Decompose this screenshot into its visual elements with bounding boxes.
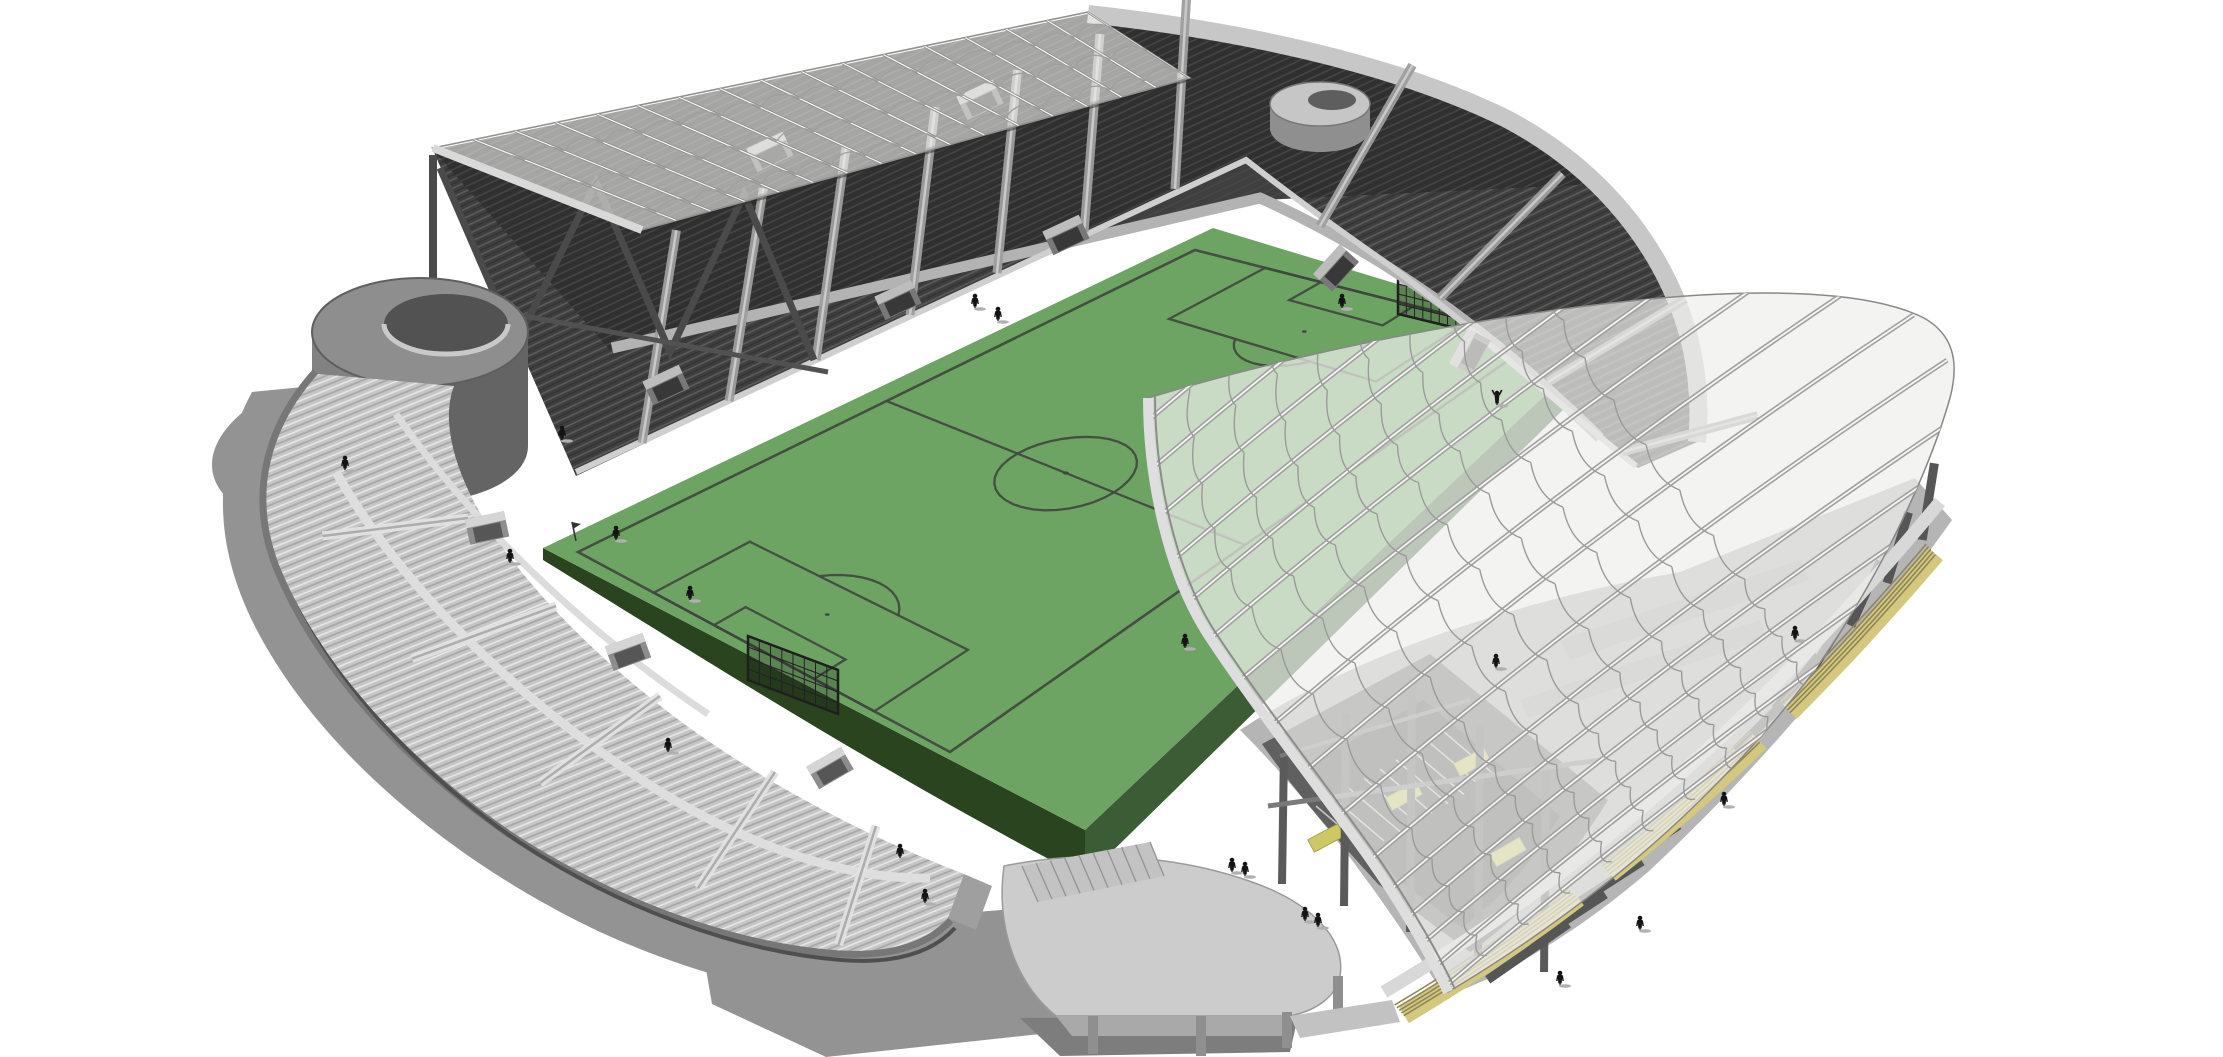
goal-far <box>1398 274 1464 330</box>
east-fins <box>1488 463 1935 980</box>
nw-rib-hi <box>965 38 1087 107</box>
vomitory-top <box>874 280 914 305</box>
canopy-rafter <box>1240 225 1848 681</box>
canopy-scallops <box>1312 296 1612 862</box>
person-arm <box>1562 976 1563 982</box>
drum-body <box>312 334 528 502</box>
aisle-stairs-edge <box>412 606 556 659</box>
canopy-rafter-hi <box>1153 12 1761 468</box>
person-arm <box>1187 639 1188 645</box>
plinth-stripe <box>1397 518 1953 1008</box>
person-shadow <box>1639 929 1651 933</box>
facade-fin <box>1530 894 1605 943</box>
person-body <box>560 430 565 440</box>
facade-fin <box>1775 656 1818 709</box>
person-arm <box>1000 312 1001 318</box>
person-arm <box>1721 797 1722 803</box>
person-shadow <box>1794 639 1806 643</box>
person-arm <box>687 591 688 597</box>
person-head <box>1495 391 1500 396</box>
ramp-step <box>1093 853 1108 888</box>
aisle-stairs <box>839 826 877 945</box>
person-shadow <box>997 320 1009 324</box>
canopy-rafter <box>1149 0 1757 420</box>
person-arm <box>618 531 619 537</box>
person-shadow <box>1231 871 1243 875</box>
canopy-scallops <box>1270 327 1570 893</box>
aisle-stairs-edge <box>997 70 1018 273</box>
curve-stand-terraces <box>266 374 964 951</box>
canopy-rafter-hi <box>1391 434 1999 890</box>
canopy-scallops <box>1478 171 1778 737</box>
main-stand-vomitories <box>642 80 1490 405</box>
nw-rib <box>597 114 779 192</box>
canopy-rafter <box>1272 269 1880 725</box>
person-arm <box>342 461 343 467</box>
person-figure <box>972 294 986 311</box>
person-shadow <box>1304 920 1316 924</box>
east-columns <box>1282 678 1546 972</box>
curve-stand-wall-base <box>273 384 955 961</box>
plinth-stripe <box>1399 520 1955 1010</box>
plinth-stripe <box>1401 523 1957 1013</box>
nw-rib-hi <box>720 89 882 164</box>
ground-shadows <box>212 384 1298 1057</box>
ramp-step <box>1136 845 1150 879</box>
vomitory-top <box>1449 328 1476 368</box>
yellow-stair-flight <box>1454 748 1491 776</box>
vomitory-top <box>806 747 845 775</box>
plinth-band <box>1404 525 1960 1015</box>
vomitory <box>1042 215 1089 255</box>
east-column <box>1282 750 1284 884</box>
nw-scallops <box>485 24 1113 168</box>
pitch-side-se <box>1085 345 1612 878</box>
main-stand-upper-rows <box>433 14 1600 350</box>
nw-rib <box>965 38 1087 107</box>
main-stand-front-rail <box>576 160 1636 472</box>
person-arm <box>1499 390 1502 395</box>
canopy-rafter <box>1423 487 2031 943</box>
goal-near-frame <box>748 636 838 714</box>
canopy-rafter-hi <box>1149 0 1757 420</box>
person-head <box>1638 916 1643 921</box>
person-head <box>666 738 671 743</box>
person-shadow <box>1244 875 1256 879</box>
vomitory-body <box>746 132 793 172</box>
pitch-side-sw <box>543 548 1085 878</box>
person-figure <box>1339 294 1353 311</box>
aisle-stairs <box>816 147 846 360</box>
aisle-stairs <box>1175 0 1187 189</box>
person-figure <box>1182 634 1196 651</box>
person-figure <box>1492 390 1508 408</box>
penalty-area-far <box>1169 268 1470 382</box>
person-figure <box>665 738 679 755</box>
vomitory-opening <box>1324 256 1354 287</box>
person-head <box>614 526 619 531</box>
goal-near-net <box>748 669 838 703</box>
person-shadow <box>974 307 986 311</box>
canopy-rafter-hi <box>1211 183 1819 639</box>
person-shadow <box>899 857 911 861</box>
person-figure <box>897 844 911 861</box>
drum-top <box>312 278 528 386</box>
yellow-stair-flight <box>1490 837 1526 866</box>
vomitory <box>1449 328 1491 376</box>
nw-rib <box>433 148 642 230</box>
pitch-platform <box>543 228 1612 878</box>
person-arm <box>927 894 928 900</box>
vomitory-body <box>874 280 921 320</box>
person-arm <box>1182 639 1183 645</box>
stadium-svg <box>0 0 2223 1057</box>
goal-far-net <box>1398 284 1464 300</box>
east-canopy-gutter-line <box>1155 395 1455 989</box>
person-arm <box>1797 631 1798 637</box>
nw-rib <box>1006 29 1121 97</box>
curve-stand-walkway <box>336 472 930 878</box>
canopy-rafter-hi <box>1435 510 2043 966</box>
nw-rib-hi <box>761 80 917 154</box>
nw-rib-hi <box>1006 29 1121 97</box>
mouth-stair <box>1428 741 1480 785</box>
person-shadow <box>667 751 679 755</box>
person-body <box>1303 911 1308 921</box>
facade-fin <box>1655 786 1715 830</box>
person-shadow <box>1723 805 1735 809</box>
goal-area-far <box>1289 282 1414 325</box>
person-figure <box>922 889 936 906</box>
goal-area-near <box>714 607 846 679</box>
person-arm <box>1234 863 1235 869</box>
canopy-scallops <box>1229 358 1529 924</box>
ramp-shadow <box>700 906 1170 1057</box>
east-stand-structure <box>1240 463 1960 1015</box>
ramp-leg <box>1196 1016 1206 1056</box>
canopy-rafter-hi <box>1272 269 1880 725</box>
person-arm <box>1792 631 1793 637</box>
person-arm <box>1493 659 1494 665</box>
east-canopy-gutter <box>1148 398 1448 992</box>
east-mouth-inner <box>1300 700 1560 928</box>
ramp-step <box>1150 842 1164 876</box>
canopy-rafter <box>1339 360 1947 816</box>
nw-rib <box>474 140 676 221</box>
penalty-spot-near <box>825 613 830 616</box>
mouth-stair <box>1412 751 1464 795</box>
yellow-stair-flight <box>1386 782 1423 810</box>
canopy-rafter <box>1391 434 1999 890</box>
ramp-leg <box>1282 1012 1292 1048</box>
canopy-scallops <box>1187 389 1487 955</box>
person-figure <box>1637 916 1651 933</box>
ramp-link-walk <box>1290 1000 1400 1038</box>
penalty-arc-near <box>819 575 899 615</box>
ramp-step <box>1107 850 1122 885</box>
mouth-stair <box>1396 760 1448 804</box>
vomitory-opening <box>884 291 916 316</box>
east-seating-hint <box>1560 560 1810 660</box>
person-figure <box>1229 858 1243 875</box>
person-head <box>1494 654 1499 659</box>
vomitory <box>465 511 510 545</box>
nw-rib <box>801 72 950 145</box>
person-head <box>343 456 348 461</box>
aisle-stairs-edge <box>1175 0 1187 189</box>
person-arm <box>564 431 565 437</box>
person-arm <box>977 299 978 305</box>
vomitory <box>605 633 651 671</box>
yellow-stair <box>1454 748 1491 776</box>
facade-fin <box>1614 825 1679 868</box>
yellow-stair-flight <box>1308 824 1345 852</box>
person-arm <box>902 849 903 855</box>
facade-fin <box>1851 561 1881 626</box>
person-body <box>666 742 671 752</box>
east-mouth-stairs <box>1316 732 1496 850</box>
nw-scallops <box>554 46 1147 195</box>
vomitory-opening <box>756 143 788 168</box>
ramp-step <box>1122 847 1136 882</box>
main-canopy-grid <box>433 12 1190 230</box>
penalty-arc-far <box>1234 339 1310 366</box>
curve-stand-shadow <box>223 384 918 997</box>
person-arm <box>559 431 560 437</box>
corner-drum-hole <box>1308 90 1356 110</box>
person-arm <box>922 894 923 900</box>
aisle-stairs <box>997 70 1018 273</box>
main-stand <box>312 0 1758 502</box>
person-arm <box>1242 867 1243 873</box>
east-canopy-grid <box>1149 0 2054 986</box>
aisle-stairs <box>729 188 763 401</box>
vomitory-body <box>956 80 1003 120</box>
person-figure <box>1493 654 1507 671</box>
person-head <box>1183 634 1188 639</box>
truss-zigzag <box>440 168 814 360</box>
person-figure <box>1315 913 1329 930</box>
person-arm <box>1339 299 1340 305</box>
mouth-stair <box>1316 806 1368 850</box>
ramp-step <box>1065 858 1080 893</box>
corner-drum-body <box>1270 104 1370 152</box>
person-shadow <box>344 469 356 473</box>
mouth-stair <box>1444 732 1496 776</box>
vomitory-body <box>1449 328 1491 376</box>
pitch-grass <box>543 228 1598 830</box>
person-arm <box>1344 299 1345 305</box>
nw-rib <box>1047 21 1156 88</box>
penalty-spot-far <box>1302 330 1307 333</box>
mouth-stair <box>1380 769 1432 813</box>
person-arm <box>507 554 508 560</box>
nw-rib <box>883 55 1019 126</box>
person-head <box>508 549 513 554</box>
facade-fin <box>1572 861 1642 906</box>
person-shadow <box>561 439 573 443</box>
vomitory-top <box>1313 244 1346 280</box>
ramp-stair-band <box>1022 842 1164 902</box>
nw-rib-hi <box>801 72 950 145</box>
nw-rib <box>842 63 984 135</box>
vomitory <box>956 80 1003 120</box>
vomitory-body <box>465 511 510 545</box>
person-arm <box>692 591 693 597</box>
main-stand-rows <box>433 14 1698 476</box>
person-arm <box>613 531 614 537</box>
person-shadow <box>1495 667 1507 671</box>
person-shadow <box>1496 404 1508 408</box>
vomitory-opening <box>816 758 848 785</box>
goal-near-net <box>748 647 838 681</box>
ramp-stairs <box>1022 842 1164 902</box>
person-head <box>560 426 565 431</box>
facade-fin <box>1488 924 1569 980</box>
aisle-stairs-edge <box>910 107 935 315</box>
person-arm <box>665 743 666 749</box>
aisle-stairs-edge <box>698 772 775 888</box>
aisle-stairs-edge <box>1320 65 1413 226</box>
person-body <box>1316 917 1321 927</box>
facade-fin <box>1887 512 1908 583</box>
aisle-stairs <box>1440 174 1563 298</box>
nw-rib-hi <box>597 114 779 192</box>
vomitory-top <box>746 132 786 157</box>
yellow-stair <box>1386 782 1423 810</box>
vomitory <box>874 280 921 320</box>
person-head <box>1793 626 1798 631</box>
nw-rib <box>761 80 917 154</box>
vomitory-top <box>605 633 646 655</box>
person-figure <box>1557 971 1571 988</box>
person-arm <box>1315 918 1316 924</box>
drum-tower <box>312 278 528 502</box>
person-head <box>1558 971 1563 976</box>
person-arm <box>1229 863 1230 869</box>
ramp-deck <box>1002 857 1341 1016</box>
canopy-rafter <box>1370 404 1978 860</box>
nw-rib-hi <box>638 106 814 183</box>
nw-rib <box>924 46 1053 116</box>
person-head <box>1340 294 1345 299</box>
facade-fin <box>1922 463 1934 540</box>
nw-rib <box>1088 12 1190 78</box>
nw-rib <box>556 123 745 202</box>
canopy-rafter <box>1306 315 1914 771</box>
goal-near <box>748 636 838 714</box>
ramp-leg <box>1333 976 1343 1018</box>
touch-and-goal-lines <box>578 250 1540 752</box>
vomitory-body <box>1042 215 1089 255</box>
person-figure <box>559 426 573 443</box>
person-head <box>898 844 903 849</box>
flag-pole <box>572 522 576 541</box>
person-body <box>1494 658 1499 668</box>
east-canopy-skin <box>1148 293 1954 992</box>
truss-chord <box>438 300 828 372</box>
person-head <box>1303 907 1308 912</box>
ramp-step <box>1022 866 1038 902</box>
person-body <box>973 298 978 308</box>
aisle-stairs-edge <box>839 826 877 945</box>
nw-rib <box>679 97 848 173</box>
main-stand-bowl <box>433 14 1698 476</box>
people-layer <box>342 294 1806 988</box>
drum-body-highlight <box>312 334 376 498</box>
nw-rib <box>515 131 711 211</box>
east-beam <box>1280 700 1470 756</box>
canopy-rafter-hi <box>1339 360 1947 816</box>
canopy-rafter <box>1153 12 1761 468</box>
mouth-stair <box>1348 788 1400 832</box>
canopy-rafter-hi <box>1306 315 1914 771</box>
nw-rib-hi <box>842 63 984 135</box>
vomitory <box>746 132 793 172</box>
person-arm <box>1498 659 1499 665</box>
east-seating-hint <box>1520 620 1768 718</box>
main-canopy <box>433 12 1190 230</box>
canopy-scallops <box>1395 233 1695 799</box>
ramp-leg <box>1088 1016 1098 1054</box>
east-column <box>1410 678 1412 932</box>
person-body <box>996 311 1001 321</box>
facade-fin <box>1814 609 1851 668</box>
person-head <box>1722 792 1727 797</box>
aisle-stairs <box>412 606 556 659</box>
stadium-render <box>0 0 2223 1057</box>
person-arm <box>1320 918 1321 924</box>
corner-drum <box>1270 82 1370 152</box>
drum-hole <box>384 294 508 354</box>
person-arm <box>1492 390 1495 395</box>
person-body <box>1722 796 1727 806</box>
person-shadow <box>509 562 521 566</box>
person-arm <box>512 554 513 560</box>
person-shadow <box>1317 926 1329 930</box>
person-shadow <box>1341 307 1353 311</box>
center-spot <box>1063 471 1069 474</box>
roof-truss <box>433 155 828 372</box>
person-shadow <box>689 599 701 603</box>
person-body <box>1340 298 1345 308</box>
person-body <box>1793 630 1798 640</box>
vomitory-opening <box>652 376 684 401</box>
aisle-stairs-edge <box>642 230 676 443</box>
plinth-stripe <box>1395 515 1951 1005</box>
nw-rib-hi <box>679 97 848 173</box>
center-circle <box>994 437 1137 510</box>
aisle-stairs-edge <box>1440 174 1563 298</box>
canopy-rafter-hi <box>1370 404 1978 860</box>
canopy-rafter <box>1435 510 2043 966</box>
vomitory <box>1313 244 1359 291</box>
vomitory <box>806 747 854 790</box>
person-head <box>1316 913 1321 918</box>
person-figure <box>613 526 627 543</box>
person-figure <box>342 456 356 473</box>
aisle-stairs <box>1084 34 1100 232</box>
penalty-area-near <box>654 542 968 712</box>
main-canopy-edge <box>433 148 642 230</box>
person-body <box>1243 866 1248 876</box>
person-arm <box>1307 912 1308 918</box>
nw-scallops <box>621 67 1180 221</box>
corner-flag <box>572 522 581 541</box>
curve-stand <box>266 374 992 961</box>
main-canopy-skin <box>433 12 1190 230</box>
person-arm <box>897 849 898 855</box>
